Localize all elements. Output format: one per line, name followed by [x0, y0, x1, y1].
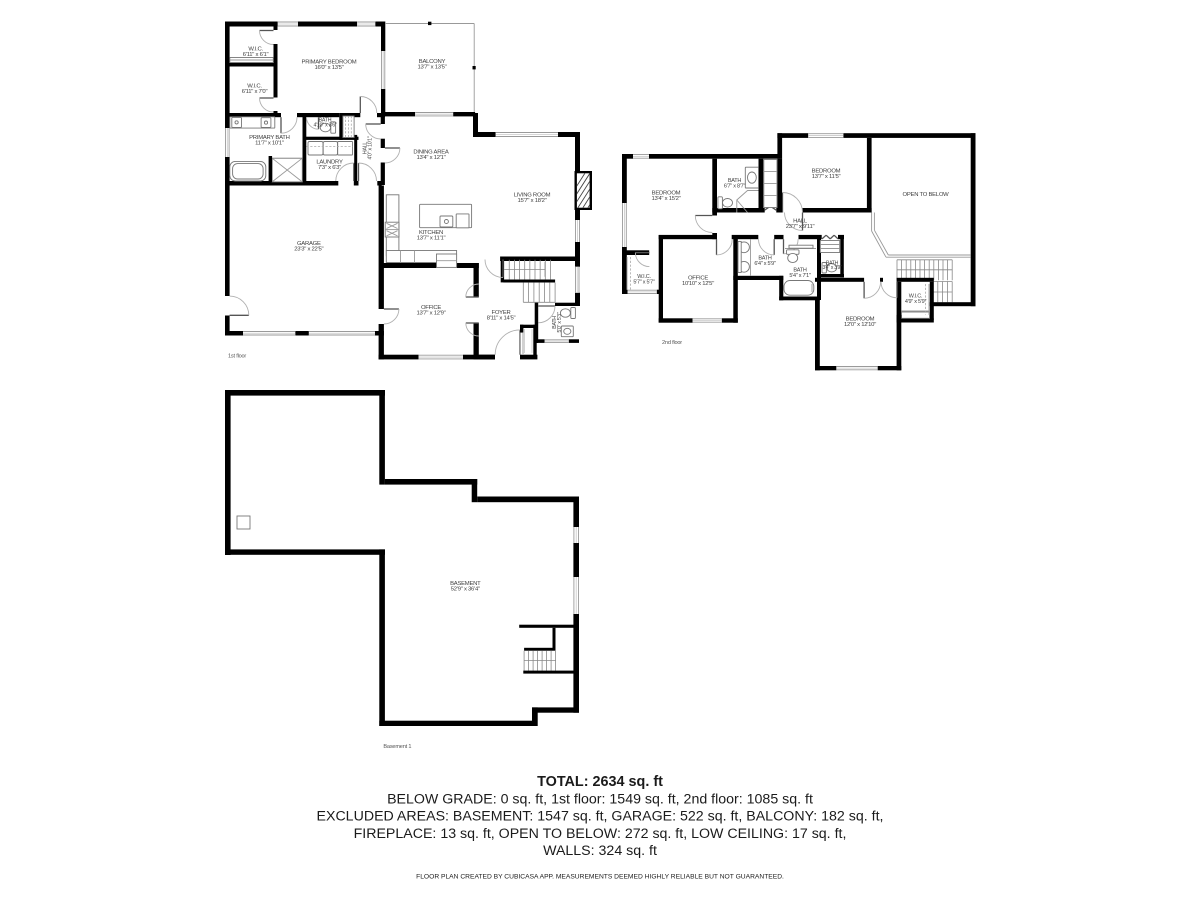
svg-text:3'4" x 3'9": 3'4" x 3'9" — [822, 265, 842, 271]
svg-text:TOTAL: 2634 sq. ft: TOTAL: 2634 sq. ft — [537, 774, 663, 790]
svg-text:7'3" x 6'3": 7'3" x 6'3" — [318, 165, 341, 171]
svg-text:52'9" x 36'4": 52'9" x 36'4" — [451, 587, 480, 593]
svg-text:15'7" x 18'2": 15'7" x 18'2" — [517, 198, 546, 204]
svg-text:5'7" x 5'7": 5'7" x 5'7" — [633, 280, 655, 286]
svg-text:13'7" x 11'5": 13'7" x 11'5" — [812, 174, 841, 180]
svg-text:FIREPLACE: 13 sq. ft, OPEN TO: FIREPLACE: 13 sq. ft, OPEN TO BELOW: 272… — [354, 826, 847, 842]
svg-text:4'9" x 5'9": 4'9" x 5'9" — [905, 299, 927, 305]
svg-text:4'0" x 10'1": 4'0" x 10'1" — [368, 136, 374, 159]
svg-text:4'10" x 3'6": 4'10" x 3'6" — [313, 123, 336, 129]
svg-text:6'7" x 8'7": 6'7" x 8'7" — [724, 184, 746, 190]
svg-text:1st floor: 1st floor — [228, 354, 246, 360]
svg-text:5'0" x 5'3": 5'0" x 5'3" — [557, 312, 563, 332]
svg-text:13'4" x 12'1": 13'4" x 12'1" — [416, 155, 445, 161]
svg-text:6'4" x 5'9": 6'4" x 5'9" — [754, 261, 776, 267]
svg-text:23'7" x 9'11": 23'7" x 9'11" — [786, 224, 815, 230]
svg-text:13'7" x 12'9": 13'7" x 12'9" — [416, 311, 445, 317]
svg-text:13'7" x 13'5": 13'7" x 13'5" — [417, 65, 446, 71]
svg-text:FLOOR PLAN CREATED BY CUBICASA: FLOOR PLAN CREATED BY CUBICASA APP. MEAS… — [416, 874, 784, 881]
svg-text:8'11" x 14'5": 8'11" x 14'5" — [487, 316, 516, 322]
svg-text:16'0" x 13'5": 16'0" x 13'5" — [314, 65, 343, 71]
svg-text:Basement 1: Basement 1 — [383, 744, 411, 750]
svg-text:BELOW GRADE: 0 sq. ft, 1st flo: BELOW GRADE: 0 sq. ft, 1st floor: 1549 s… — [387, 791, 813, 807]
svg-text:13'7" x 11'1": 13'7" x 11'1" — [417, 236, 446, 242]
svg-text:6'11" x 7'0": 6'11" x 7'0" — [242, 89, 268, 95]
svg-text:11'7" x 10'1": 11'7" x 10'1" — [255, 141, 284, 147]
svg-text:10'10" x 12'5": 10'10" x 12'5" — [682, 281, 714, 287]
svg-text:WALLS: 324 sq. ft: WALLS: 324 sq. ft — [543, 843, 657, 859]
svg-text:13'4" x 15'2": 13'4" x 15'2" — [651, 196, 680, 202]
svg-text:12'0" x 12'10": 12'0" x 12'10" — [844, 322, 876, 328]
svg-text:5'4" x 7'1": 5'4" x 7'1" — [789, 273, 811, 279]
svg-text:EXCLUDED AREAS: BASEMENT: 1547: EXCLUDED AREAS: BASEMENT: 1547 sq. ft, G… — [317, 809, 884, 825]
svg-text:23'3" x 22'5": 23'3" x 22'5" — [294, 247, 323, 253]
svg-text:6'11" x 6'1": 6'11" x 6'1" — [243, 52, 269, 58]
svg-text:2nd floor: 2nd floor — [662, 340, 682, 346]
svg-text:OPEN TO BELOW: OPEN TO BELOW — [903, 192, 950, 198]
